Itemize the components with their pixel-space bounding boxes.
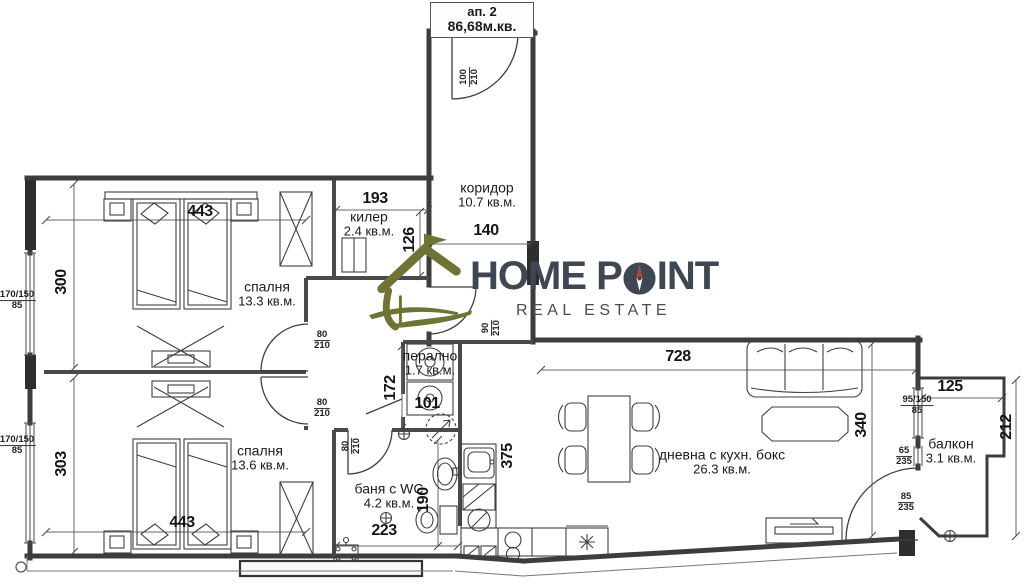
dim-balcony-width: 125 [937,378,962,396]
room-label-laundry: перално 1.7 кв.м. [403,347,458,378]
dim-living-width: 728 [665,348,690,366]
balcony-drain [945,531,956,542]
floorplan-page: ап. 2 86,68м.кв. спалня 13.3 кв.м. спалн… [0,0,1024,586]
bath-door-size: 80 210 [341,438,363,454]
room-label-bedroom2: спалня 13.6 кв.м. [231,442,289,473]
dim-bedroom1-width: 443 [187,203,212,221]
brand-tagline: REAL ESTATE [516,302,666,320]
brand-post: INT [657,254,718,299]
apartment-number: ап. 2 [467,5,497,19]
room-label-bedroom1: спалня 13.3 кв.м. [238,278,296,309]
room-label-balcony: балкон 3.1 кв.м. [926,435,976,466]
dim-balcony-depth: 212 [998,414,1016,439]
dim-bedroom2-depth: 303 [53,451,71,476]
brand-text: HOME PINT [470,254,718,299]
bedroom2-door-size: 80 210 [314,398,330,420]
dim-bedroom2-width: 443 [169,514,194,532]
dim-kitchen-run: 375 [499,443,517,468]
dim-laundry-depth: 172 [382,375,400,400]
balcony-window-size: 95/150 85 [900,395,933,417]
left-window1-size: 170/150 85 [0,290,36,312]
closet-cabinet [342,238,366,272]
dim-laundry-width: 101 [414,395,439,413]
apartment-area: 86,68м.кв. [448,19,517,34]
dim-bath-width: 223 [371,522,396,540]
house-icon [368,228,476,332]
homepoint-logo: HOME PINT REAL ESTATE [368,228,678,328]
entry-door-size: 100 210 [459,67,481,87]
dim-closet-width: 193 [362,190,387,208]
room-label-bathroom: баня с WC 4.2 кв.м. [355,480,424,511]
brand-pre: HOME P [470,254,622,299]
dim-bath-depth: 190 [415,487,433,512]
balcony-door-size: 85 235 [898,492,914,514]
compass-icon [623,260,656,293]
bedroom1-door-size: 80 210 [314,330,330,352]
balcony-opening-small-size: 65 235 [896,446,912,468]
room-label-living: дневна с кухн. бокс 26.3 кв.м. [659,446,785,477]
dim-bedroom1-depth: 300 [53,269,71,294]
room-label-corridor: коридор 10.7 кв.м. [458,179,516,210]
left-window2-size: 170/150 85 [0,435,36,457]
apartment-title-box: ап. 2 86,68м.кв. [430,2,534,38]
dim-living-depth: 340 [853,412,871,437]
